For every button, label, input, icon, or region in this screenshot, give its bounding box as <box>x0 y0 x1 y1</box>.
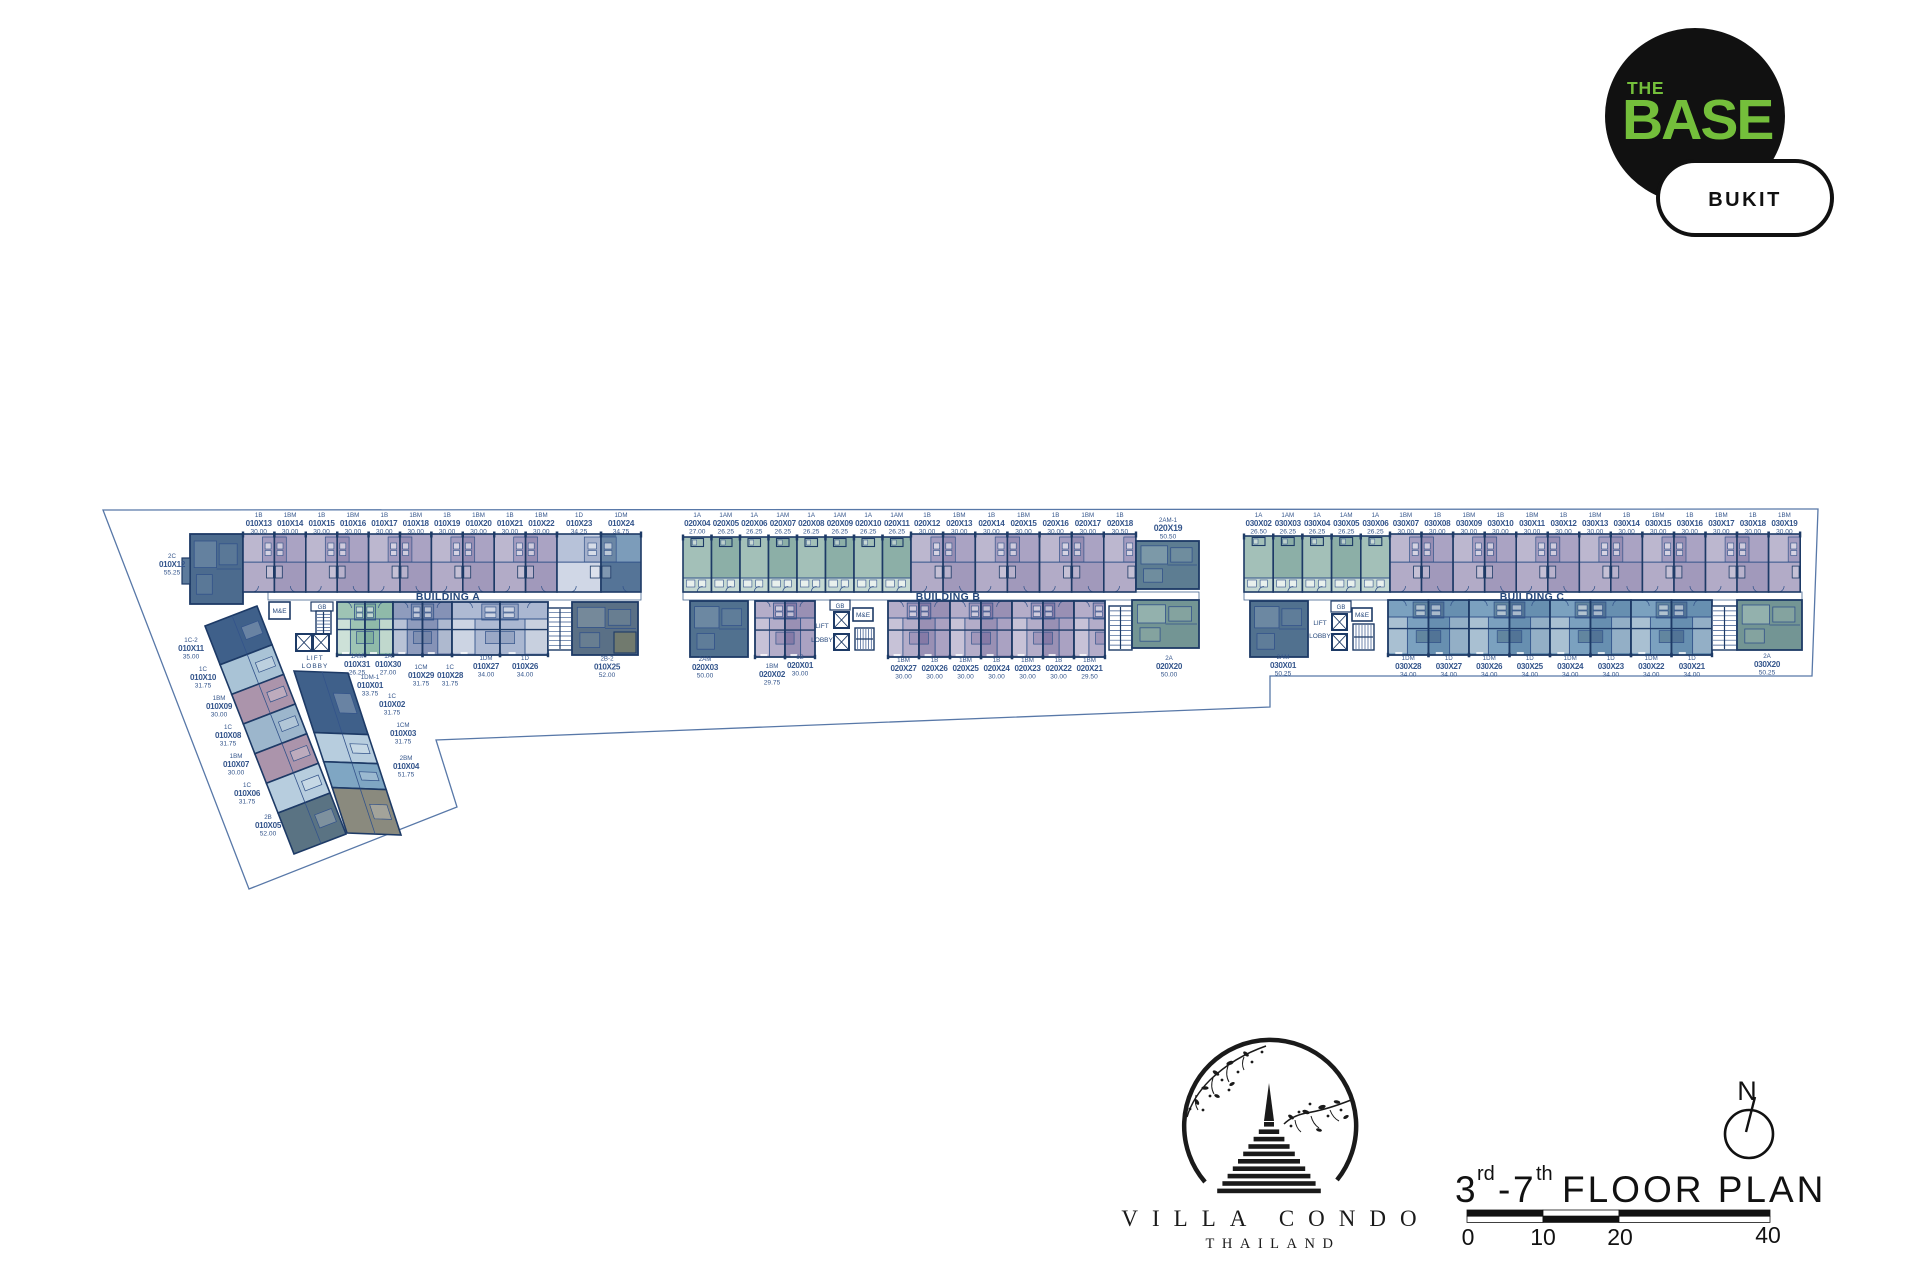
svg-text:1BM: 1BM <box>284 512 297 519</box>
svg-text:-: - <box>1498 1169 1510 1210</box>
svg-text:20: 20 <box>1607 1224 1633 1250</box>
svg-text:30.00: 30.00 <box>951 529 968 536</box>
svg-text:LOBBY: LOBBY <box>302 663 329 670</box>
svg-text:1BM: 1BM <box>1463 512 1476 519</box>
svg-text:010X17: 010X17 <box>371 519 398 528</box>
svg-text:1B: 1B <box>1497 512 1505 519</box>
svg-text:1BM: 1BM <box>959 657 972 664</box>
svg-text:BUILDING B: BUILDING B <box>916 592 981 603</box>
svg-text:2C: 2C <box>168 553 176 560</box>
svg-text:2A: 2A <box>1763 653 1771 660</box>
svg-text:1CM: 1CM <box>396 722 409 729</box>
svg-text:31.75: 31.75 <box>395 739 412 746</box>
svg-text:GB: GB <box>1337 605 1346 611</box>
svg-text:1A: 1A <box>864 512 872 519</box>
svg-text:020X22: 020X22 <box>1045 664 1072 673</box>
svg-text:31.75: 31.75 <box>442 681 459 688</box>
svg-text:030X25: 030X25 <box>1517 662 1544 671</box>
svg-text:52.00: 52.00 <box>599 672 616 679</box>
svg-text:1B: 1B <box>993 657 1001 664</box>
svg-text:30.00: 30.00 <box>345 529 362 536</box>
svg-text:030X02: 030X02 <box>1246 519 1273 528</box>
svg-text:1D: 1D <box>1607 655 1615 662</box>
svg-text:010X27: 010X27 <box>473 662 500 671</box>
svg-text:34.00: 34.00 <box>478 672 495 679</box>
svg-text:1A: 1A <box>1372 512 1380 519</box>
svg-text:30.00: 30.00 <box>926 674 943 681</box>
svg-text:30.00: 30.00 <box>1492 529 1509 536</box>
svg-text:1C: 1C <box>199 666 207 673</box>
svg-text:1BM: 1BM <box>1083 657 1096 664</box>
svg-text:020X09: 020X09 <box>827 519 854 528</box>
svg-text:010X22: 010X22 <box>528 519 555 528</box>
svg-text:1D: 1D <box>1526 655 1534 662</box>
svg-text:34.00: 34.00 <box>1400 672 1417 679</box>
svg-text:020X02: 020X02 <box>759 670 786 679</box>
svg-text:010X05: 010X05 <box>255 821 282 830</box>
svg-text:1AM: 1AM <box>890 512 903 519</box>
svg-text:030X16: 030X16 <box>1677 519 1704 528</box>
svg-text:010X08: 010X08 <box>215 731 242 740</box>
svg-text:34.00: 34.00 <box>1603 672 1620 679</box>
svg-text:1B: 1B <box>381 512 389 519</box>
svg-text:020X15: 020X15 <box>1010 519 1037 528</box>
svg-text:35.00: 35.00 <box>183 654 200 661</box>
svg-text:29.50: 29.50 <box>1081 674 1098 681</box>
svg-text:1D: 1D <box>1688 655 1696 662</box>
svg-text:th: th <box>1536 1163 1553 1185</box>
svg-text:2AM: 2AM <box>699 656 712 663</box>
svg-text:020X03: 020X03 <box>692 663 719 672</box>
svg-text:30.00: 30.00 <box>376 529 393 536</box>
svg-text:1BM: 1BM <box>347 512 360 519</box>
svg-text:26.25: 26.25 <box>832 529 849 536</box>
svg-text:30.00: 30.00 <box>1650 529 1667 536</box>
svg-text:1B: 1B <box>255 512 263 519</box>
svg-text:030X14: 030X14 <box>1614 519 1641 528</box>
svg-text:30.00: 30.00 <box>1398 529 1415 536</box>
svg-text:26.25: 26.25 <box>1367 529 1384 536</box>
svg-text:1A: 1A <box>384 653 392 660</box>
svg-text:020X20: 020X20 <box>1156 662 1183 671</box>
svg-text:31.75: 31.75 <box>220 741 237 748</box>
svg-text:020X24: 020X24 <box>983 664 1010 673</box>
svg-text:1BM: 1BM <box>897 657 910 664</box>
svg-text:1C: 1C <box>224 724 232 731</box>
svg-text:40: 40 <box>1755 1222 1781 1248</box>
svg-text:010X14: 010X14 <box>277 519 304 528</box>
svg-text:010X23: 010X23 <box>566 519 593 528</box>
svg-text:010X31: 010X31 <box>344 660 371 669</box>
svg-text:30.00: 30.00 <box>533 529 550 536</box>
svg-text:1BM: 1BM <box>1715 512 1728 519</box>
svg-text:10: 10 <box>1530 1224 1556 1250</box>
svg-text:1AM: 1AM <box>833 512 846 519</box>
svg-text:1BM: 1BM <box>1526 512 1539 519</box>
svg-text:1DM: 1DM <box>479 655 492 662</box>
svg-text:1AM: 1AM <box>776 512 789 519</box>
svg-text:010X30: 010X30 <box>375 660 402 669</box>
svg-text:30.00: 30.00 <box>1776 529 1793 536</box>
svg-text:1A: 1A <box>807 512 815 519</box>
svg-text:50.25: 50.25 <box>1275 671 1292 678</box>
svg-text:26.25: 26.25 <box>889 529 906 536</box>
svg-text:30.00: 30.00 <box>1745 529 1762 536</box>
svg-text:34.00: 34.00 <box>1562 672 1579 679</box>
svg-text:030X13: 030X13 <box>1582 519 1609 528</box>
svg-text:34.00: 34.00 <box>1522 672 1539 679</box>
svg-text:BUILDING A: BUILDING A <box>416 592 480 603</box>
svg-text:27.00: 27.00 <box>689 529 706 536</box>
svg-text:1A: 1A <box>1255 512 1263 519</box>
svg-text:33.75: 33.75 <box>362 691 379 698</box>
svg-text:GB: GB <box>318 605 327 611</box>
svg-text:1B: 1B <box>1623 512 1631 519</box>
svg-text:1BM: 1BM <box>1589 512 1602 519</box>
svg-text:34.00: 34.00 <box>1481 672 1498 679</box>
svg-text:1D: 1D <box>521 655 529 662</box>
svg-text:30.00: 30.00 <box>1019 674 1036 681</box>
svg-text:1BM: 1BM <box>230 753 243 760</box>
svg-text:1B: 1B <box>1560 512 1568 519</box>
svg-text:rd: rd <box>1477 1163 1495 1185</box>
svg-text:010X29: 010X29 <box>408 671 435 680</box>
svg-text:LIFT: LIFT <box>1313 620 1326 627</box>
svg-text:030X22: 030X22 <box>1638 662 1665 671</box>
svg-text:030X19: 030X19 <box>1771 519 1798 528</box>
svg-text:31.75: 31.75 <box>384 710 401 717</box>
svg-text:1B: 1B <box>1434 512 1442 519</box>
svg-text:030X20: 030X20 <box>1754 660 1781 669</box>
svg-text:020X08: 020X08 <box>798 519 825 528</box>
svg-text:50.00: 50.00 <box>1161 672 1178 679</box>
svg-text:010X18: 010X18 <box>403 519 430 528</box>
svg-text:1B: 1B <box>1116 512 1124 519</box>
svg-text:1AM: 1AM <box>1340 512 1353 519</box>
svg-text:030X10: 030X10 <box>1487 519 1514 528</box>
svg-text:020X14: 020X14 <box>978 519 1005 528</box>
svg-text:1AM: 1AM <box>719 512 732 519</box>
svg-text:010X06: 010X06 <box>234 789 261 798</box>
svg-text:010X10: 010X10 <box>190 673 217 682</box>
svg-text:010X24: 010X24 <box>608 519 635 528</box>
svg-text:29.75: 29.75 <box>764 680 781 687</box>
svg-text:1BM: 1BM <box>766 663 779 670</box>
svg-text:30.00: 30.00 <box>1080 529 1097 536</box>
svg-text:34.25: 34.25 <box>571 529 588 536</box>
svg-text:30.00: 30.00 <box>895 674 912 681</box>
svg-text:030X24: 030X24 <box>1557 662 1584 671</box>
svg-text:020X05: 020X05 <box>713 519 740 528</box>
svg-text:30.00: 30.00 <box>983 529 1000 536</box>
svg-text:030X06: 030X06 <box>1362 519 1389 528</box>
svg-text:30.50: 30.50 <box>1112 529 1129 536</box>
svg-text:1D: 1D <box>1445 655 1453 662</box>
svg-text:010X02: 010X02 <box>379 700 406 709</box>
svg-text:030X17: 030X17 <box>1708 519 1735 528</box>
svg-text:THAILAND: THAILAND <box>1206 1236 1341 1252</box>
svg-text:030X08: 030X08 <box>1424 519 1451 528</box>
svg-text:010X09: 010X09 <box>206 702 233 711</box>
svg-text:M&E: M&E <box>272 608 287 615</box>
svg-text:26.25: 26.25 <box>803 529 820 536</box>
svg-text:1A: 1A <box>693 512 701 519</box>
svg-text:34.00: 34.00 <box>1441 672 1458 679</box>
svg-text:010X04: 010X04 <box>393 762 420 771</box>
svg-text:010X16: 010X16 <box>340 519 367 528</box>
svg-text:30.00: 30.00 <box>282 529 299 536</box>
svg-text:030X05: 030X05 <box>1333 519 1360 528</box>
svg-text:1B: 1B <box>443 512 451 519</box>
svg-text:1B: 1B <box>318 512 326 519</box>
svg-text:1BM: 1BM <box>535 512 548 519</box>
svg-text:020X06: 020X06 <box>741 519 768 528</box>
svg-text:010X03: 010X03 <box>390 729 417 738</box>
svg-text:1B: 1B <box>1749 512 1757 519</box>
svg-text:2B-2: 2B-2 <box>600 656 614 663</box>
svg-text:M&E: M&E <box>856 612 871 619</box>
svg-text:020X23: 020X23 <box>1014 664 1041 673</box>
svg-text:30.00: 30.00 <box>407 529 424 536</box>
svg-text:030X09: 030X09 <box>1456 519 1483 528</box>
svg-text:010X26: 010X26 <box>512 662 539 671</box>
svg-text:1BM: 1BM <box>213 695 226 702</box>
svg-text:030X12: 030X12 <box>1550 519 1577 528</box>
svg-text:020X17: 020X17 <box>1075 519 1102 528</box>
svg-text:50.50: 50.50 <box>1160 534 1177 541</box>
svg-text:020X12: 020X12 <box>914 519 941 528</box>
svg-text:1BM: 1BM <box>1652 512 1665 519</box>
svg-text:30.00: 30.00 <box>439 529 456 536</box>
svg-text:030X04: 030X04 <box>1304 519 1331 528</box>
svg-text:31.75: 31.75 <box>195 683 212 690</box>
svg-text:030X03: 030X03 <box>1275 519 1302 528</box>
svg-text:1C: 1C <box>243 782 251 789</box>
svg-text:020X25: 020X25 <box>952 664 979 673</box>
svg-text:020X18: 020X18 <box>1107 519 1134 528</box>
svg-text:30.00: 30.00 <box>957 674 974 681</box>
svg-text:30.00: 30.00 <box>250 529 267 536</box>
svg-text:1B: 1B <box>1055 657 1063 664</box>
svg-text:1AM: 1AM <box>351 653 364 660</box>
svg-text:2A: 2A <box>1165 655 1173 662</box>
svg-text:020X19: 020X19 <box>1154 523 1183 533</box>
svg-text:34.00: 34.00 <box>1643 672 1660 679</box>
svg-text:010X20: 010X20 <box>465 519 492 528</box>
svg-text:2AM: 2AM <box>1277 654 1290 661</box>
svg-text:010X21: 010X21 <box>497 519 524 528</box>
svg-text:GB: GB <box>836 604 845 610</box>
svg-text:030X21: 030X21 <box>1679 662 1706 671</box>
svg-text:020X13: 020X13 <box>946 519 973 528</box>
svg-text:010X07: 010X07 <box>223 760 250 769</box>
svg-text:1C-2: 1C-2 <box>184 637 198 644</box>
svg-text:30.00: 30.00 <box>1524 529 1541 536</box>
svg-text:52.00: 52.00 <box>260 831 277 838</box>
svg-text:030X23: 030X23 <box>1598 662 1625 671</box>
svg-text:010X13: 010X13 <box>246 519 273 528</box>
svg-text:1B: 1B <box>988 512 996 519</box>
svg-text:1B: 1B <box>923 512 931 519</box>
svg-text:30.00: 30.00 <box>1015 529 1032 536</box>
svg-text:020X04: 020X04 <box>684 519 711 528</box>
svg-text:30.00: 30.00 <box>919 529 936 536</box>
svg-text:30.00: 30.00 <box>470 529 487 536</box>
svg-text:BUKIT: BUKIT <box>1708 189 1782 211</box>
svg-text:55.25: 55.25 <box>164 570 181 577</box>
svg-text:010X25: 010X25 <box>594 663 621 672</box>
svg-text:30.00: 30.00 <box>1587 529 1604 536</box>
svg-text:1AM: 1AM <box>1281 512 1294 519</box>
svg-text:26.50: 26.50 <box>1250 529 1267 536</box>
svg-text:1A: 1A <box>750 512 758 519</box>
svg-text:30.00: 30.00 <box>1713 529 1730 536</box>
svg-text:1B: 1B <box>796 654 804 661</box>
svg-text:020X27: 020X27 <box>890 664 917 673</box>
svg-text:M&E: M&E <box>1355 612 1370 619</box>
svg-text:1BM: 1BM <box>1081 512 1094 519</box>
svg-text:020X16: 020X16 <box>1043 519 1070 528</box>
svg-text:30.00: 30.00 <box>988 674 1005 681</box>
svg-text:34.00: 34.00 <box>517 672 534 679</box>
svg-text:030X28: 030X28 <box>1395 662 1422 671</box>
svg-text:1D: 1D <box>575 512 583 519</box>
svg-text:VILLA CONDO: VILLA CONDO <box>1121 1206 1430 1231</box>
svg-text:010X11: 010X11 <box>178 644 204 653</box>
svg-text:3: 3 <box>1455 1169 1476 1210</box>
svg-text:51.75: 51.75 <box>398 772 415 779</box>
svg-text:030X27: 030X27 <box>1436 662 1463 671</box>
svg-text:1A: 1A <box>1313 512 1321 519</box>
svg-text:26.25: 26.25 <box>775 529 792 536</box>
svg-text:BUILDING C: BUILDING C <box>1500 592 1565 603</box>
svg-text:30.00: 30.00 <box>1555 529 1572 536</box>
svg-text:1B: 1B <box>931 657 939 664</box>
svg-text:30.00: 30.00 <box>313 529 330 536</box>
svg-text:1DM: 1DM <box>1564 655 1577 662</box>
svg-text:LOBBY: LOBBY <box>1309 633 1331 640</box>
svg-text:30.00: 30.00 <box>211 712 228 719</box>
svg-text:010X01: 010X01 <box>357 681 384 690</box>
svg-text:26.25: 26.25 <box>746 529 763 536</box>
svg-text:020X21: 020X21 <box>1076 664 1103 673</box>
svg-text:BASE: BASE <box>1622 88 1772 152</box>
svg-text:1BM: 1BM <box>1399 512 1412 519</box>
svg-text:030X01: 030X01 <box>1270 661 1297 670</box>
svg-text:30.00: 30.00 <box>1461 529 1478 536</box>
svg-text:FLOOR PLAN: FLOOR PLAN <box>1562 1169 1826 1210</box>
svg-text:1DM-1: 1DM-1 <box>361 674 380 681</box>
svg-text:26.25: 26.25 <box>1309 529 1326 536</box>
svg-text:020X10: 020X10 <box>855 519 882 528</box>
svg-text:26.25: 26.25 <box>860 529 877 536</box>
svg-text:LOBBY: LOBBY <box>811 637 833 644</box>
svg-text:010X12: 010X12 <box>159 560 186 569</box>
svg-text:030X18: 030X18 <box>1740 519 1767 528</box>
svg-text:27.00: 27.00 <box>380 670 397 677</box>
svg-text:020X26: 020X26 <box>921 664 948 673</box>
svg-text:1C: 1C <box>388 693 396 700</box>
svg-text:010X28: 010X28 <box>437 671 464 680</box>
svg-text:2B: 2B <box>264 814 272 821</box>
svg-text:1B: 1B <box>1052 512 1060 519</box>
svg-text:2BM: 2BM <box>400 755 413 762</box>
svg-text:1B: 1B <box>1686 512 1694 519</box>
svg-text:030X07: 030X07 <box>1393 519 1420 528</box>
svg-text:26.25: 26.25 <box>1338 529 1355 536</box>
svg-text:30.00: 30.00 <box>1618 529 1635 536</box>
svg-text:1BM: 1BM <box>1017 512 1030 519</box>
svg-text:1CM: 1CM <box>414 664 427 671</box>
svg-text:020X11: 020X11 <box>884 519 910 528</box>
svg-text:34.00: 34.00 <box>1684 672 1701 679</box>
svg-text:1B: 1B <box>506 512 514 519</box>
svg-text:030X11: 030X11 <box>1519 519 1545 528</box>
svg-text:030X15: 030X15 <box>1645 519 1672 528</box>
svg-text:1DM: 1DM <box>614 512 627 519</box>
svg-text:31.75: 31.75 <box>413 681 430 688</box>
svg-text:1C: 1C <box>446 664 454 671</box>
svg-text:26.25: 26.25 <box>1280 529 1297 536</box>
svg-text:1DM: 1DM <box>1402 655 1415 662</box>
svg-text:1BM: 1BM <box>953 512 966 519</box>
svg-text:26.25: 26.25 <box>718 529 735 536</box>
svg-text:010X19: 010X19 <box>434 519 461 528</box>
svg-text:50.25: 50.25 <box>1759 670 1776 677</box>
svg-text:30.00: 30.00 <box>792 671 809 678</box>
svg-text:1DM: 1DM <box>1645 655 1658 662</box>
svg-text:31.75: 31.75 <box>239 799 256 806</box>
svg-text:34.75: 34.75 <box>613 529 630 536</box>
svg-text:020X01: 020X01 <box>787 661 814 670</box>
svg-text:LIFT: LIFT <box>306 655 323 662</box>
svg-text:1BM: 1BM <box>472 512 485 519</box>
svg-text:LIFT: LIFT <box>815 623 828 630</box>
svg-text:020X07: 020X07 <box>770 519 797 528</box>
svg-text:1BM: 1BM <box>1021 657 1034 664</box>
svg-text:50.00: 50.00 <box>697 673 714 680</box>
svg-text:30.00: 30.00 <box>1681 529 1698 536</box>
svg-text:7: 7 <box>1513 1169 1534 1210</box>
svg-text:30.00: 30.00 <box>502 529 519 536</box>
svg-text:1BM: 1BM <box>1778 512 1791 519</box>
svg-text:010X15: 010X15 <box>308 519 335 528</box>
svg-text:1BM: 1BM <box>409 512 422 519</box>
svg-text:30.00: 30.00 <box>1047 529 1064 536</box>
svg-text:0: 0 <box>1462 1224 1475 1250</box>
svg-text:30.00: 30.00 <box>228 770 245 777</box>
svg-text:30.00: 30.00 <box>1050 674 1067 681</box>
svg-text:1DM: 1DM <box>1483 655 1496 662</box>
svg-text:30.00: 30.00 <box>1429 529 1446 536</box>
svg-text:030X26: 030X26 <box>1476 662 1503 671</box>
